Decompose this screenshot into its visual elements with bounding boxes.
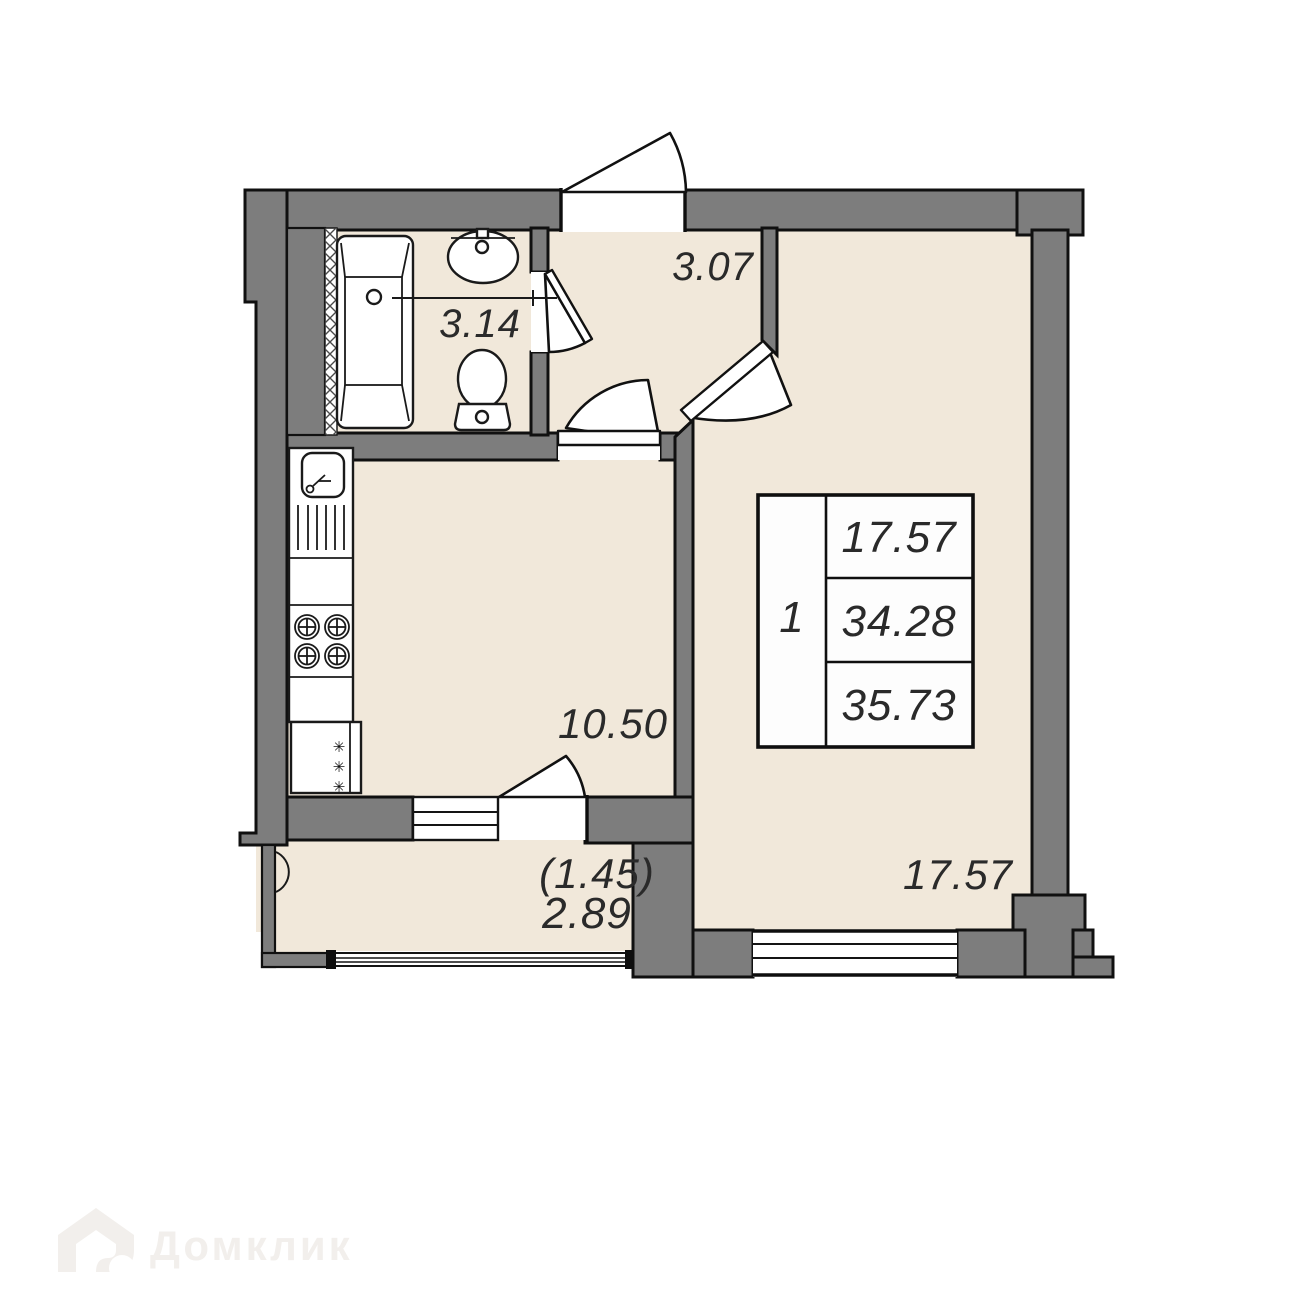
wall-left — [240, 190, 287, 845]
sink-icon — [448, 229, 518, 283]
wall-balcony-right-foot — [693, 930, 753, 977]
watermark: Домклик — [58, 1208, 353, 1281]
wall-bottom-right-of-window — [957, 930, 1025, 977]
toilet-icon — [455, 350, 510, 430]
kitchen-sink-icon — [302, 453, 344, 497]
kitchen-fixtures: ✳ ✳ ✳ — [289, 448, 361, 796]
table-rooms-count: 1 — [779, 593, 804, 642]
living-room-area-label: 17.57 — [903, 851, 1014, 898]
living-room-window — [753, 930, 957, 977]
kitchen-window — [413, 797, 498, 840]
snowflake-icon: ✳ — [333, 780, 346, 796]
table-area-without-balcony: 34.28 — [841, 597, 956, 646]
wall-top-left — [245, 190, 561, 230]
bathtub-icon — [337, 236, 413, 428]
entrance-door — [561, 133, 686, 232]
table-living-area: 17.57 — [841, 513, 957, 562]
wall-balcony-bottom — [262, 953, 328, 967]
snowflake-icon: ✳ — [333, 740, 346, 756]
table-total-area: 35.73 — [841, 681, 956, 730]
burner — [325, 615, 349, 639]
burner — [295, 615, 319, 639]
snowflake-icon: ✳ — [333, 760, 346, 776]
wall-stub-right-1 — [1073, 930, 1093, 957]
floor-plan-page: ✳ ✳ ✳ 1 17.57 34.28 35.73 3.14 3.07 10.5… — [0, 0, 1300, 1300]
vent-shaft — [287, 228, 325, 435]
hallway-area-label: 3.07 — [672, 245, 755, 289]
burner — [295, 644, 319, 668]
wall-bathroom-right-lower — [531, 352, 548, 435]
burner — [325, 644, 349, 668]
wall-kitchen-balcony-right — [585, 797, 693, 843]
wall-kitchen-living — [675, 420, 693, 797]
wall-bathroom-right-upper — [531, 228, 548, 272]
wall-balcony-left — [262, 845, 275, 967]
entrance-door-swing — [562, 133, 686, 192]
bathroom-area-label: 3.14 — [439, 302, 521, 346]
fridge-icon: ✳ ✳ ✳ — [291, 722, 361, 796]
kitchen-area-label: 10.50 — [558, 700, 668, 747]
wall-kitchen-balcony-left — [287, 797, 413, 840]
wall-corner-top-right — [1017, 190, 1083, 235]
partition-hatch — [325, 228, 337, 435]
floor-plan-drawing: ✳ ✳ ✳ 1 17.57 34.28 35.73 3.14 3.07 10.5… — [0, 0, 1300, 1300]
wall-stub-right-2 — [1073, 957, 1113, 977]
domclick-logo-icon — [58, 1208, 135, 1281]
wall-hallway-living — [762, 228, 777, 355]
watermark-brand: Домклик — [150, 1222, 353, 1269]
balcony-area-label: 2.89 — [541, 889, 632, 938]
wall-right — [1032, 230, 1068, 898]
wall-top-right — [685, 190, 1017, 230]
area-info-table: 1 17.57 34.28 35.73 — [758, 495, 973, 747]
